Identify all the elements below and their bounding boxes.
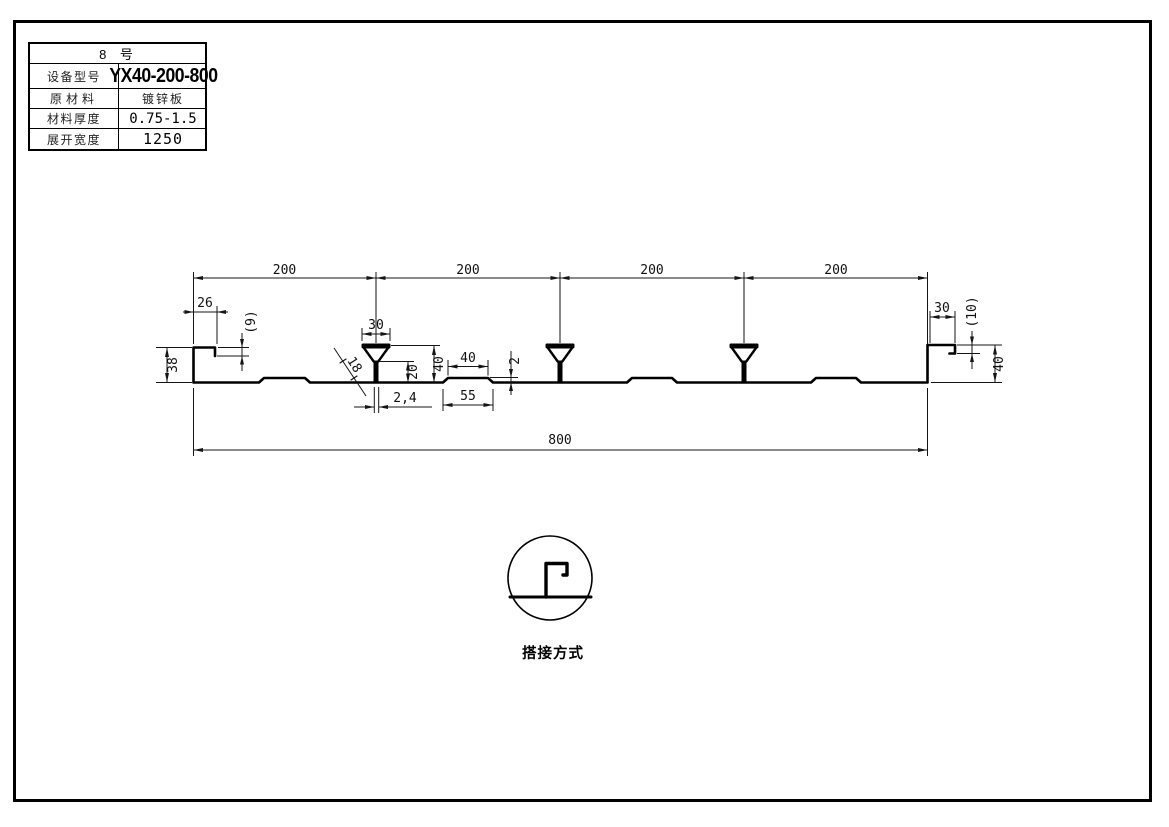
rib-1 [362, 344, 391, 383]
dim-pitch-3: 200 [640, 263, 663, 278]
dim-rib-stem-height-text: 20 [406, 364, 421, 380]
dim-left-height-text: 38 [166, 357, 181, 373]
lap-joint-detail: 搭接方式 [508, 536, 592, 662]
dim-left-height: 38 [156, 348, 192, 383]
dim-stiffener-top-text: 40 [460, 351, 476, 366]
profile-outline [194, 345, 956, 383]
detail-seam-path [546, 564, 567, 598]
dim-left-step: (9) [217, 310, 259, 371]
dim-rib-slant: 18 [334, 348, 366, 396]
dim-rib-stem-width: 2,4 [354, 387, 432, 413]
dim-pitch-4: 200 [824, 263, 847, 278]
dim-right-height-text: 40 [992, 356, 1007, 372]
rib-3 [730, 344, 759, 383]
profile-drawing: 200 200 200 200 800 26 (9) [0, 0, 1169, 827]
dim-total-width-text: 800 [548, 433, 571, 448]
drawing-sheet: 8 号 设备型号 YX40-200-800 原材料 镀锌板 材料厚度 0.75-… [0, 0, 1169, 827]
dim-stiffener-base: 55 [443, 389, 493, 411]
dim-left-lip-text: 26 [197, 296, 213, 311]
dim-rib-height-text: 40 [432, 356, 447, 372]
dim-right-lip: 30 [930, 301, 955, 343]
dim-stiffener-base-text: 55 [460, 389, 476, 404]
dim-rib-top-text: 30 [368, 318, 384, 333]
dim-stiffener-top: 40 [448, 351, 488, 376]
dim-stiffener-height-text: 2 [508, 357, 523, 365]
dim-total-width: 800 [194, 388, 928, 456]
dim-right-step-text: (10) [965, 296, 980, 327]
dim-right-height: 40 [931, 345, 1007, 383]
detail-caption: 搭接方式 [522, 644, 584, 662]
rib-2 [546, 344, 575, 383]
dim-rib-stem-height: 20 [379, 362, 421, 383]
dim-rib-stem-width-text: 2,4 [393, 391, 417, 406]
dim-pitch-2: 200 [456, 263, 479, 278]
dim-left-step-text: (9) [244, 310, 259, 333]
dim-right-lip-text: 30 [934, 301, 950, 316]
dim-left-lip: 26 [183, 296, 228, 344]
dim-rib-slant-text: 18 [343, 354, 364, 375]
dim-pitch-1: 200 [273, 263, 296, 278]
dim-pitch: 200 200 200 200 [194, 263, 928, 344]
detail-circle [508, 536, 592, 620]
dim-stiffener-height: 2 [490, 351, 523, 395]
